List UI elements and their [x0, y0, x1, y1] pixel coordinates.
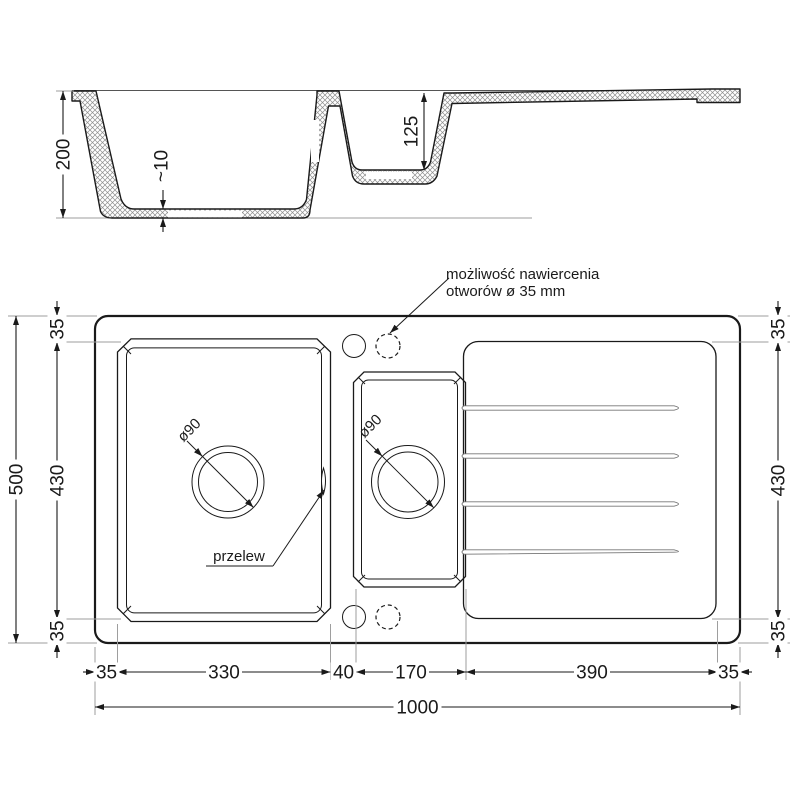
svg-text:35: 35 [96, 663, 117, 684]
dim-label-left-top: 35 [48, 315, 69, 343]
dim-label-depth-small: 125 [402, 116, 423, 148]
dim-label-seg-4: 390 [574, 663, 610, 684]
dim-label-seg-2: 40 [331, 663, 357, 684]
dim-label-seg-1: 330 [206, 663, 242, 684]
dim-label-depth-main: 200 [54, 135, 75, 175]
svg-text:390: 390 [576, 663, 608, 684]
main-drain-dim-line [203, 457, 254, 508]
main-drain-dim-leader [187, 441, 203, 457]
svg-text:35: 35 [718, 663, 739, 684]
dim-label-right-top: 35 [769, 315, 790, 343]
dim-label-height-total: 500 [7, 460, 28, 500]
bottom-dimension-row: 35 330 40 170 390 35 [83, 663, 752, 684]
svg-text:35: 35 [769, 318, 790, 339]
drainboard [464, 342, 717, 619]
svg-text:170: 170 [395, 663, 427, 684]
annotation-leader [390, 278, 449, 333]
svg-text:ø90: ø90 [174, 415, 204, 445]
svg-text:200: 200 [54, 139, 75, 171]
svg-text:35: 35 [769, 620, 790, 641]
sink-technical-drawing: 200 ~10 125 możliwość nawiercenia otworó… [0, 0, 800, 800]
svg-text:35: 35 [48, 620, 69, 641]
small-drain-label: ø90 [355, 411, 385, 441]
main-drain-recess [168, 211, 242, 218]
dim-label-left-bottom: 35 [48, 617, 69, 645]
drainboard-grooves [462, 406, 679, 554]
dim-label-right-bottom: 35 [769, 617, 790, 645]
svg-text:430: 430 [48, 465, 69, 497]
overflow-label: przelew [213, 548, 265, 565]
small-bowl-outer [354, 372, 466, 587]
annotation-line1: możliwość nawiercenia [446, 266, 600, 283]
svg-text:330: 330 [208, 663, 240, 684]
drill-option-hole-bottom [376, 605, 400, 629]
small-bowl-inner [362, 380, 458, 579]
svg-text:125: 125 [402, 116, 423, 148]
overflow-leader [273, 490, 324, 566]
main-drain-label: ø90 [174, 415, 204, 445]
faucet-hole-bottom [343, 606, 366, 629]
svg-text:ø90: ø90 [355, 411, 385, 441]
dim-label-seg-3: 170 [393, 663, 429, 684]
small-drain-dim-line [382, 456, 434, 508]
dim-label-seg-0: 35 [94, 663, 120, 684]
drill-option-hole-top [376, 334, 400, 358]
dim-label-left-middle: 430 [48, 461, 69, 501]
small-bowl-corner-facets [358, 377, 461, 582]
main-bowl-corner-facets [123, 346, 325, 614]
svg-text:40: 40 [333, 663, 354, 684]
svg-text:1000: 1000 [396, 698, 438, 719]
dim-label-seg-5: 35 [716, 663, 742, 684]
extension-lines [8, 316, 790, 715]
main-bowl-outer [118, 339, 331, 622]
svg-text:500: 500 [7, 464, 28, 496]
svg-text:~10: ~10 [152, 150, 173, 182]
plan-view: możliwość nawiercenia otworów ø 35 mm ø9… [7, 266, 791, 719]
small-drain-dim-leader [366, 440, 382, 456]
annotation-line2: otworów ø 35 mm [446, 283, 565, 300]
small-drain-recess [366, 172, 412, 180]
dim-label-right-middle: 430 [769, 461, 790, 501]
faucet-hole-top [343, 335, 366, 358]
main-bowl-inner [127, 348, 322, 613]
overflow-channel [311, 120, 319, 162]
svg-text:35: 35 [48, 318, 69, 339]
sink-technical-drawing-page: 200 ~10 125 możliwość nawiercenia otworó… [0, 0, 800, 800]
svg-text:430: 430 [769, 465, 790, 497]
dim-label-bottom-thickness: ~10 [152, 150, 173, 182]
section-view: 200 ~10 125 [54, 89, 741, 232]
dim-label-width-total: 1000 [394, 698, 442, 719]
